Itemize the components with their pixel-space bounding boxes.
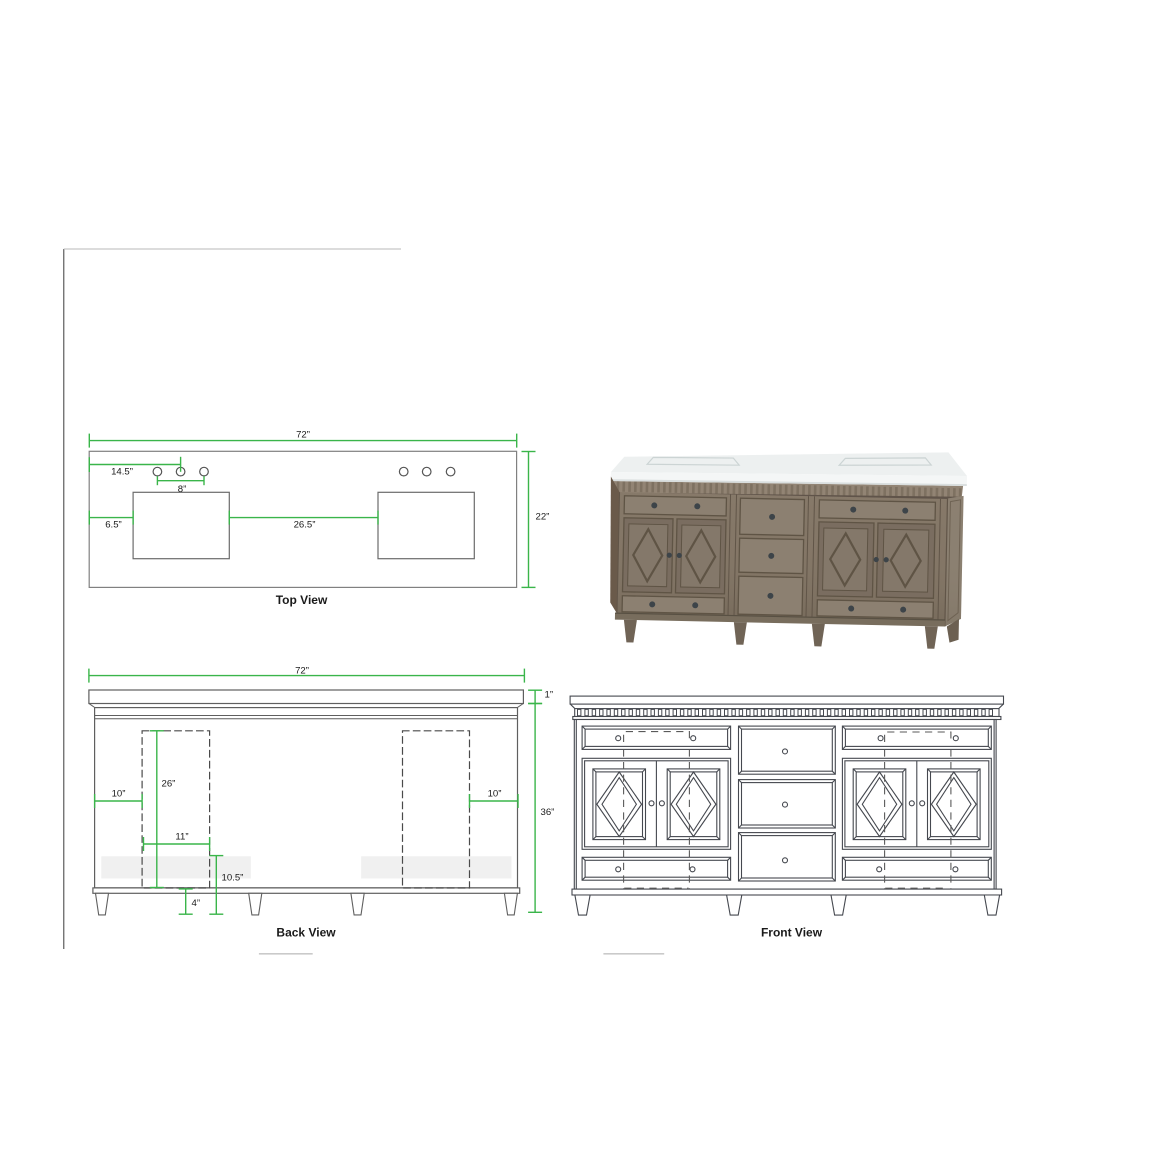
svg-text:26”: 26”: [162, 779, 176, 790]
svg-text:36”: 36”: [541, 807, 555, 818]
svg-text:10”: 10”: [488, 788, 502, 799]
svg-text:26.5”: 26.5”: [294, 520, 316, 531]
svg-text:1”: 1”: [545, 690, 554, 701]
svg-text:4”: 4”: [192, 898, 201, 909]
svg-text:10.5”: 10.5”: [222, 873, 244, 884]
svg-text:11”: 11”: [175, 831, 188, 842]
svg-text:10”: 10”: [112, 788, 126, 799]
svg-text:72”: 72”: [295, 665, 309, 676]
svg-text:72”: 72”: [296, 430, 310, 441]
svg-text:8”: 8”: [178, 484, 187, 495]
svg-text:Top View: Top View: [276, 593, 328, 607]
svg-text:14.5”: 14.5”: [111, 467, 133, 478]
svg-text:22”: 22”: [536, 512, 550, 523]
svg-text:6.5”: 6.5”: [105, 520, 122, 531]
svg-text:Back View: Back View: [276, 926, 336, 940]
svg-text:Front View: Front View: [761, 926, 823, 940]
